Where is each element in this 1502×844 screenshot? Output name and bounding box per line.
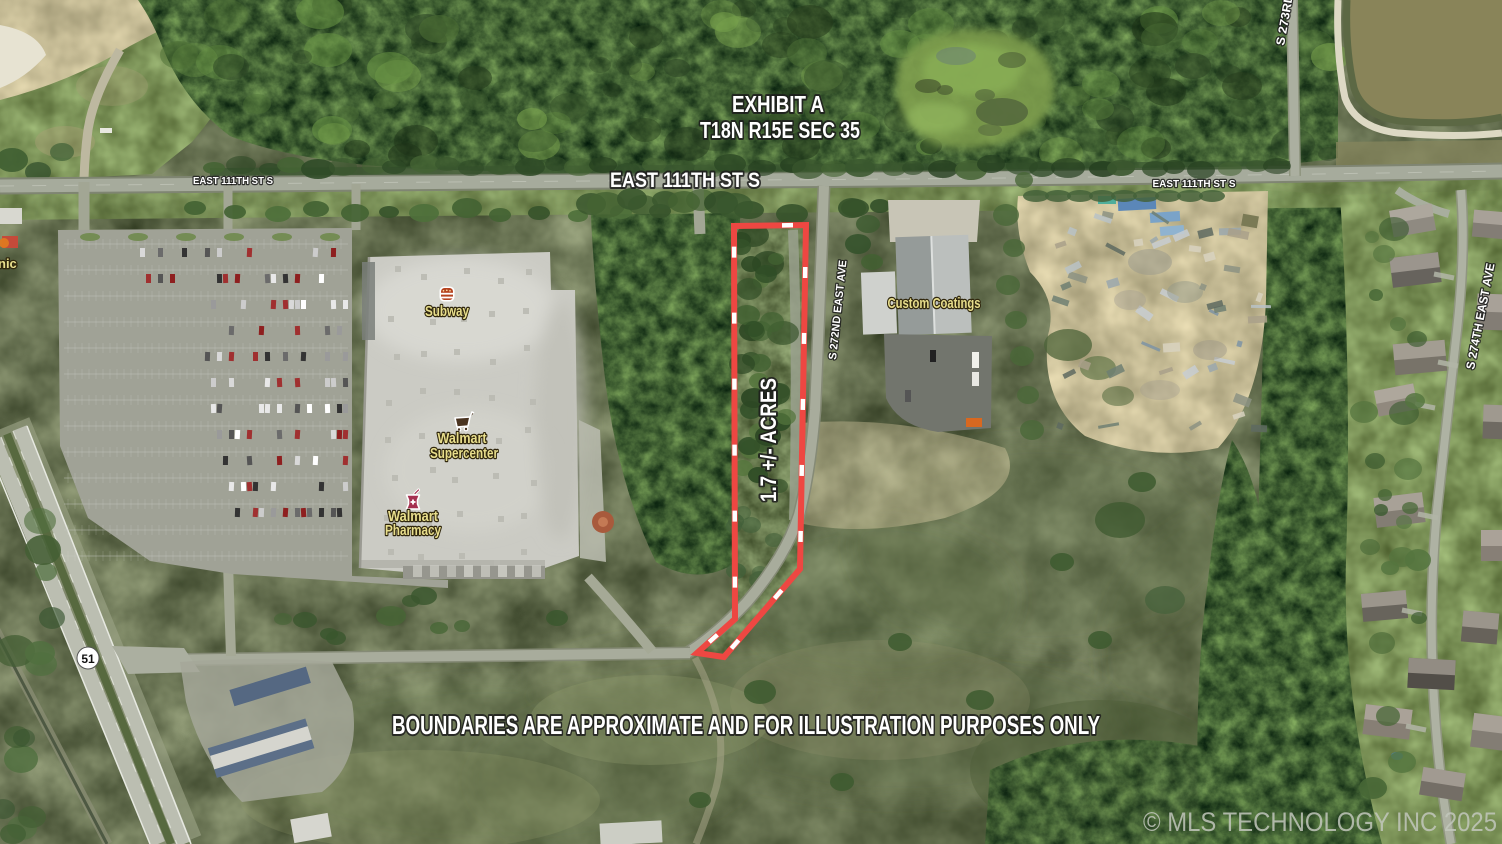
svg-text:Custom Coatings: Custom Coatings bbox=[888, 295, 981, 312]
svg-text:T18N R15E SEC 35: T18N R15E SEC 35 bbox=[700, 117, 860, 143]
svg-text:EAST 111TH ST S: EAST 111TH ST S bbox=[1153, 179, 1236, 190]
svg-text:© MLS TECHNOLOGY INC 2025: © MLS TECHNOLOGY INC 2025 bbox=[1143, 807, 1497, 837]
svg-text:nic: nic bbox=[0, 256, 17, 271]
svg-text:51: 51 bbox=[81, 652, 95, 666]
svg-text:1.7 +/- ACRES: 1.7 +/- ACRES bbox=[756, 378, 781, 502]
svg-text:EXHIBIT A: EXHIBIT A bbox=[732, 91, 824, 117]
svg-text:EAST 111TH ST S: EAST 111TH ST S bbox=[610, 169, 760, 192]
svg-text:Subway: Subway bbox=[425, 303, 470, 320]
svg-text:Supercenter: Supercenter bbox=[430, 445, 498, 462]
svg-text:Pharmacy: Pharmacy bbox=[385, 522, 442, 539]
svg-text:BOUNDARIES ARE APPROXIMATE AND: BOUNDARIES ARE APPROXIMATE AND FOR ILLUS… bbox=[392, 710, 1100, 740]
svg-text:EAST 111TH ST S: EAST 111TH ST S bbox=[193, 176, 273, 187]
